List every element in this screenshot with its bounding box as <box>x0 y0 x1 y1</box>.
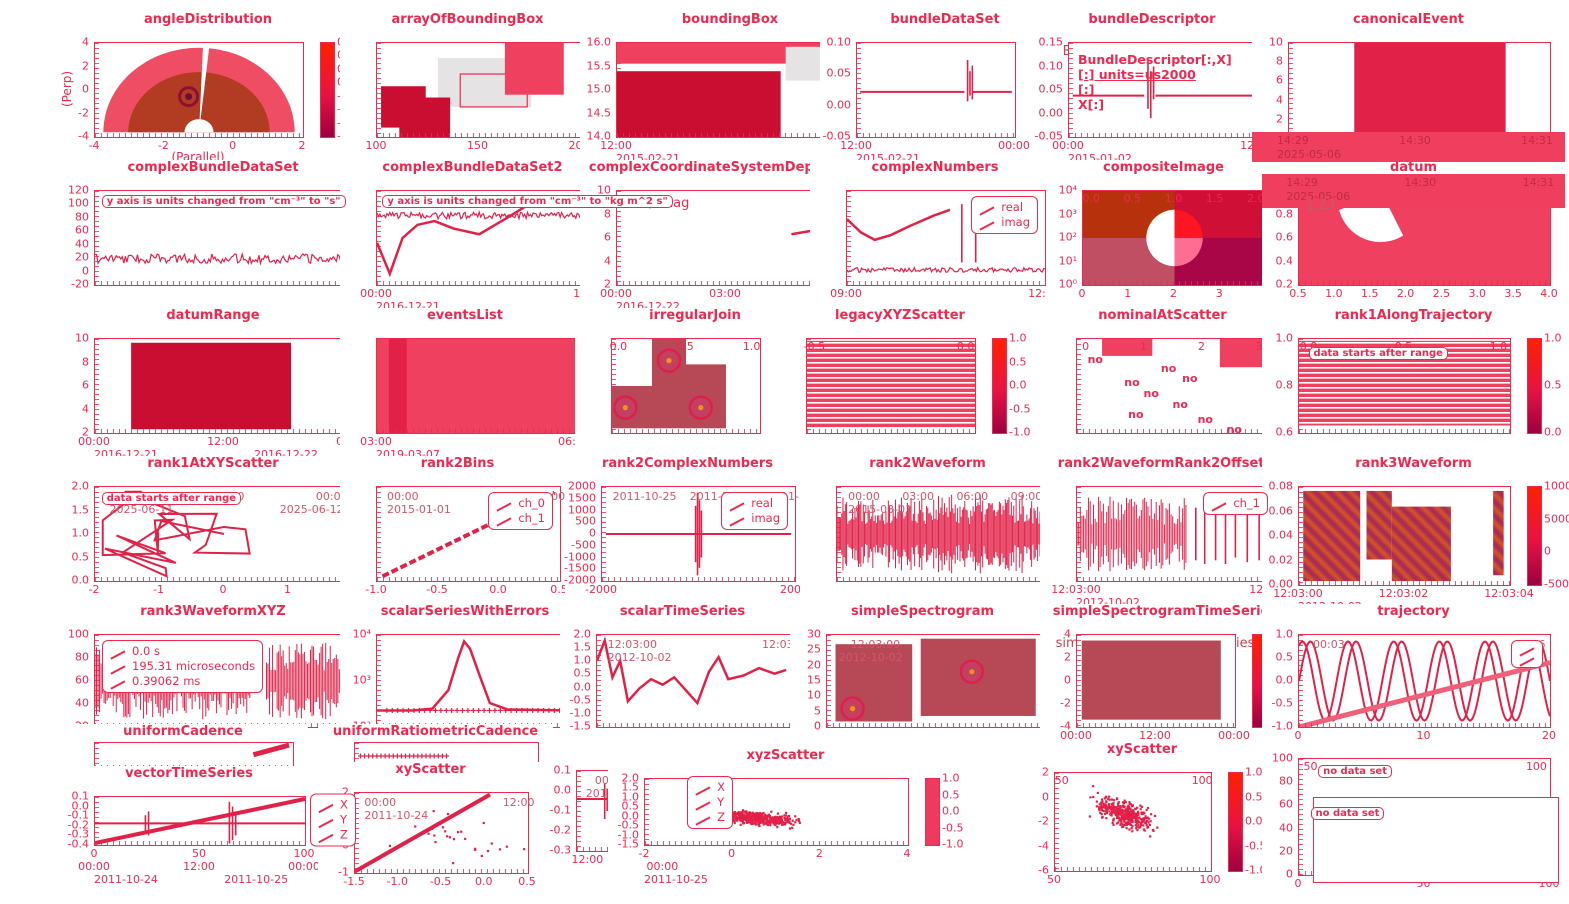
figure-datum: datumdatum0.51.01.52.02.53.03.54.01.00.8… <box>1262 160 1565 310</box>
axes <box>1298 486 1511 586</box>
figure-title: rank3WaveformXYZ <box>58 604 368 619</box>
figure-vector-time-series: vectorTimeSeriesvectorTimeSeries05010000… <box>58 766 320 900</box>
date-label: 2025-05-06 <box>1277 148 1341 161</box>
plot-content <box>1055 773 1211 871</box>
legend-label: 0.0 s <box>132 644 160 659</box>
time-label: 09:00 <box>1011 490 1043 503</box>
x-tick: 0 <box>220 583 227 596</box>
y-tick: 0.6 <box>1276 231 1294 244</box>
y-tick: -20 <box>71 278 89 291</box>
legend-item: real <box>729 496 780 511</box>
y-tick: 2 <box>1042 766 1049 779</box>
y-tick: -4 <box>1038 839 1049 852</box>
x-tick: 2 <box>299 139 306 152</box>
date-label: 2011-10-25 <box>224 873 288 886</box>
time-label: 12:03:00 <box>608 638 657 651</box>
y-tick: -0.3 <box>550 844 571 857</box>
y-tick: 30 <box>807 628 821 641</box>
legend-label: imag <box>1001 215 1030 230</box>
x-tick: -1.0 <box>387 875 408 888</box>
figure-rank2-complex-numbers: rank2ComplexNumbersrank2ComplexNumbers-2… <box>565 456 810 606</box>
y-tick: 2.0 <box>72 480 90 493</box>
y-tick: 4 <box>604 254 611 267</box>
line-swatch-icon <box>695 783 711 793</box>
x-tick: 00:00 <box>998 139 1030 152</box>
figure-title: uniformRatiometricCadence <box>318 724 553 739</box>
y-tick: 10³ <box>353 674 371 687</box>
y-tick: 100 <box>1272 752 1293 765</box>
y-tick: 0.00 <box>1039 106 1064 119</box>
figure-title: rank2Bins <box>340 456 575 471</box>
figure-title: scalarSeriesWithErrors <box>340 604 590 619</box>
figure-title: xyScatter <box>1018 742 1266 757</box>
date-label: 2015-03-01 <box>848 503 912 516</box>
line-swatch-icon <box>695 813 711 823</box>
x-tick: 1 <box>284 583 291 596</box>
plot-content <box>95 43 303 137</box>
y-tick: 40 <box>75 697 89 710</box>
y-tick: 1.0 <box>1276 332 1294 345</box>
y-tick: 0.5 <box>574 667 592 680</box>
x-tick: 2 <box>816 847 823 860</box>
y-tick: -2 <box>78 106 89 119</box>
legend-label: Y <box>717 795 724 810</box>
figure-rank3-waveform: rank3Waveformrank3Waveform12:03:0012:03:… <box>1262 456 1565 610</box>
colorbar <box>1228 772 1243 872</box>
figure-simple-spectrogram: simpleSpectrogramsimpleSpectrogram302520… <box>790 604 1055 752</box>
y-tick: -1.0 <box>570 706 591 719</box>
y-tick: 0.04 <box>1269 529 1294 542</box>
y-tick: 0.6 <box>1276 426 1294 439</box>
x-tick: -4 <box>89 139 100 152</box>
y-tick: 5 <box>814 704 821 717</box>
y-tick: 4 <box>82 402 89 415</box>
x-tick: 20 <box>1542 729 1556 742</box>
y-tick: 10 <box>75 332 89 345</box>
y-tick: 0.15 <box>1039 36 1064 49</box>
y-tick: 0 <box>1042 790 1049 803</box>
date-label: 2012-10-02 <box>839 651 903 664</box>
figure-title: legacyXYZScatter <box>770 308 1030 323</box>
colorbar <box>1527 338 1542 434</box>
nominal-label: no <box>1173 398 1188 411</box>
time-label: 14:31 <box>1523 176 1555 189</box>
colorbar-tick: 0.5 <box>1009 355 1027 368</box>
colorbar-tick: -1.0 <box>942 838 963 851</box>
y-tick: 0 <box>814 720 821 733</box>
date-label: 2015-01-01 <box>387 503 451 516</box>
x-tick: 1.5 <box>1361 287 1379 300</box>
plot-content <box>645 779 908 845</box>
y-tick: 0.05 <box>827 67 852 80</box>
colorbar-tick: -0.5 <box>1009 402 1030 415</box>
figure-simple-spectrogram-time-series: simpleSpectrogramTimeSeriessimpleSpectro… <box>1040 604 1290 752</box>
figure-title: nominalAtScatter <box>1040 308 1285 323</box>
value-label: 1.23 <box>1306 198 1335 213</box>
legend-label: imag <box>751 511 780 526</box>
x-tick: -2 <box>89 583 100 596</box>
x-tick-top: 1.5 <box>1206 192 1224 205</box>
figure-title: arrayOfBoundingBox <box>340 12 595 27</box>
y-tick: -1 <box>338 866 349 879</box>
figure-title: trajectory <box>1262 604 1565 619</box>
time-label: 14:30 <box>1404 176 1436 189</box>
y-tick: -6 <box>1038 864 1049 877</box>
plot-content <box>1077 635 1235 727</box>
time-label: 14:30 <box>1399 134 1431 147</box>
y-tick: 10² <box>1059 231 1077 244</box>
figure-title: simpleSpectrogram <box>790 604 1055 619</box>
figure-title: rank1AlongTrajectory <box>1262 308 1565 323</box>
x-tick: 0 <box>1079 287 1086 300</box>
y-tick: -0.4 <box>68 838 89 851</box>
y-tick: -4 <box>1060 720 1071 733</box>
y-tick: 16.0 <box>587 36 612 49</box>
legend-label: 0.39062 ms <box>132 674 200 689</box>
x-tick: 12:03:00 <box>1051 583 1100 596</box>
y-tick: 0.4 <box>1276 254 1294 267</box>
figure-rank2-waveform-rank2-offsets: rank2WaveformRank2Offsetsrank2WaveformRa… <box>1040 456 1290 606</box>
y-tick: 60 <box>75 674 89 687</box>
axes <box>94 338 354 434</box>
figure-complex-bundle-data-set: complexBundleDataSetcomplexBundleDataSet… <box>58 160 368 310</box>
y-tick: 100 <box>68 628 89 641</box>
y-tick: 10¹ <box>1059 254 1077 267</box>
x-tick: 2 <box>1170 287 1177 300</box>
figure-title: vectorTimeSeries <box>58 766 320 781</box>
colorbar-tick: 5000 <box>1544 512 1569 525</box>
colorbar <box>1527 486 1542 586</box>
x-tick: 12:00 <box>572 853 604 866</box>
legend-item: ch_1 <box>496 511 545 526</box>
figure-title: scalarTimeSeries <box>560 604 805 619</box>
legend: XYZ <box>310 794 356 847</box>
nominal-label: no <box>1198 413 1213 426</box>
y-tick: -1.5 <box>570 720 591 733</box>
y-tick: 0.10 <box>827 36 852 49</box>
line-swatch-icon <box>496 499 512 509</box>
y-tick: -0.1 <box>550 804 571 817</box>
nominal-label: no <box>1227 423 1242 436</box>
y-tick: 10⁴ <box>353 628 371 641</box>
y-tick: -1.0 <box>1272 720 1293 733</box>
x-tick-top: 1.0 <box>1490 340 1508 353</box>
legend-item: Z <box>318 828 348 843</box>
x-tick: 12:03:02 <box>1379 587 1428 600</box>
y-tick: 2 <box>1064 651 1071 664</box>
x-tick-top: 1.0 <box>743 340 761 353</box>
colorbar-tick: 0.0 <box>1544 426 1562 439</box>
y-tick: 0.0 <box>1276 674 1294 687</box>
x-tick: 00:00 <box>1218 729 1250 742</box>
x-tick: 0 <box>728 847 735 860</box>
legend-label: 195.31 microseconds <box>132 659 255 674</box>
figure-rank1-at-xy-scatter: rank1AtXYScatterrank1AtXYScatter-2-10122… <box>58 456 368 606</box>
descriptor-line: BundleDescriptor[:,X] <box>1078 52 1232 67</box>
colorbar <box>925 778 940 846</box>
figure-title: uniformCadence <box>58 724 308 739</box>
annotation-badge: data starts after range <box>1309 347 1448 360</box>
y-tick: 0.0 <box>574 680 592 693</box>
line-swatch-icon <box>496 514 512 524</box>
y-tick: 120 <box>68 184 89 197</box>
plot-content <box>95 797 305 845</box>
figure-no-data-panels: 05010050100100806040200no data setno dat… <box>1262 742 1565 900</box>
figure-title: complexNumbers <box>810 160 1060 175</box>
time-band: 14:2914:3014:312025-05-06 <box>1252 132 1565 162</box>
x-tick-top: 50 <box>1304 760 1318 773</box>
colorbar-tick: -5000 <box>1544 578 1569 591</box>
legend-label: X <box>717 780 725 795</box>
legend-item: Y <box>318 813 348 828</box>
colorbar-tick: 0.0 <box>1009 379 1027 392</box>
y-tick: 10 <box>1269 36 1283 49</box>
figure-title: canonicalEvent <box>1252 12 1565 27</box>
plot-content <box>857 43 1015 137</box>
y-tick: 2 <box>82 59 89 72</box>
figure-canonical-event: canonicalEventcanonicalEvent0.82.0108642… <box>1252 12 1565 164</box>
x-tick: 100 <box>294 847 315 860</box>
legend: XYZ <box>687 776 733 829</box>
x-tick: 4.0 <box>1540 287 1558 300</box>
time-label: 14:29 <box>1286 176 1318 189</box>
y-tick: 0.5 <box>1276 651 1294 664</box>
x-tick-time: 12:00 <box>183 860 215 873</box>
nominal-label: no <box>1124 376 1139 389</box>
y-tick: 1.0 <box>72 527 90 540</box>
figure-trajectory: trajectorytrajectory010201.00.50.0-0.5-1… <box>1262 604 1565 752</box>
y-tick: 2 <box>82 426 89 439</box>
axes <box>856 42 1016 138</box>
plot-content <box>95 339 353 433</box>
legend-label: real <box>751 496 773 511</box>
time-label: 00:00 <box>387 490 419 503</box>
date-label: 2011-10-24 <box>94 873 158 886</box>
x-tick: 100 <box>366 139 387 152</box>
x-tick: 0 <box>229 139 236 152</box>
nominal-label: no <box>1128 408 1143 421</box>
y-tick: -4 <box>78 130 89 143</box>
colorbar-tick: 0.5 <box>942 788 960 801</box>
figure-title: eventsList <box>340 308 590 323</box>
axes <box>1288 42 1551 140</box>
figure-title: rank3Waveform <box>1262 456 1565 471</box>
colorbar-tick: 10000 <box>1544 480 1569 493</box>
y-tick: 0.0 <box>72 574 90 587</box>
x-tick: -2 <box>158 139 169 152</box>
legend-label: ch_1 <box>1233 496 1260 511</box>
line-swatch-icon <box>729 499 745 509</box>
y-tick: 2 <box>1276 112 1283 125</box>
x-tick: 3.0 <box>1469 287 1487 300</box>
y-tick: 10 <box>807 689 821 702</box>
y-tick: 8 <box>1276 55 1283 68</box>
y-tick: 0 <box>1286 868 1293 881</box>
colorbar <box>992 338 1007 434</box>
x-tick: 09:00 <box>830 287 862 300</box>
plot-content <box>1299 487 1510 585</box>
legend: realimag <box>721 492 788 530</box>
figure-array-of-bounding-box: arrayOfBoundingBoxarrayOfBoundingBox1001… <box>340 12 595 162</box>
nominal-label: no <box>1144 387 1159 400</box>
x-tick: 12:00 <box>1139 729 1171 742</box>
y-tick: 2.0 <box>574 628 592 641</box>
colorbar-tick: 0.0 <box>1245 815 1263 828</box>
y-tick: -0.05 <box>1035 130 1063 143</box>
y-tick: 0.05 <box>1039 83 1064 96</box>
y-tick: 80 <box>75 210 89 223</box>
time-label: 00:00 <box>364 796 396 809</box>
y-tick: 20 <box>807 658 821 671</box>
x-tick: -0.5 <box>430 875 451 888</box>
nominal-label: no <box>1161 362 1176 375</box>
time-label: 00:03 <box>1313 638 1345 651</box>
legend-item: ch_0 <box>496 496 545 511</box>
x-tick: 100 <box>1200 873 1221 886</box>
line-swatch-icon <box>318 830 334 840</box>
x-tick-top: 100 <box>1526 760 1547 773</box>
legend-label: ch_1 <box>518 511 545 526</box>
y-tick: -0.2 <box>550 824 571 837</box>
y-tick: 1.5 <box>574 641 592 654</box>
y-tick: 80 <box>75 651 89 664</box>
x-tick-top: 0.5 <box>676 340 694 353</box>
figure-rank1-along-trajectory: rank1AlongTrajectoryrank1AlongTrajectory… <box>1262 308 1565 458</box>
x-tick: 00:00 <box>360 287 392 300</box>
figure-datum-range: datumRangedatumRange00:0012:0000:0010864… <box>58 308 368 458</box>
plot-content <box>612 339 760 433</box>
legend-item <box>1519 644 1535 654</box>
x-tick: 50 <box>192 847 206 860</box>
legend-item: real <box>979 200 1030 215</box>
plot-content <box>377 339 575 433</box>
figure-complex-numbers: complexNumberscomplexNumbers09:0012:00re… <box>810 160 1060 310</box>
legend-item: X <box>318 798 348 813</box>
y-tick: 60 <box>75 224 89 237</box>
legend-item: ch_1 <box>1211 496 1260 511</box>
figure-title: rank1AtXYScatter <box>58 456 368 471</box>
x-tick-time: 00:00 <box>647 860 679 873</box>
colorbar <box>320 42 335 138</box>
figure-nominal-at-scatter: nominalAtScatternominalAtScatter01233530… <box>1040 308 1285 458</box>
time-label: 14:29 <box>1277 134 1309 147</box>
y-tick: 0.2 <box>1276 278 1294 291</box>
y-tick: 14.0 <box>587 130 612 143</box>
colorbar-tick: 1.0 <box>942 772 960 785</box>
legend-label: ch_0 <box>518 496 545 511</box>
y-tick: 6 <box>82 379 89 392</box>
y-tick: 0.1 <box>554 764 572 777</box>
y-tick: 8 <box>82 355 89 368</box>
x-tick: -1 <box>153 583 164 596</box>
figure-title: xyScatter <box>318 762 543 777</box>
legend: ch_0ch_1 <box>488 492 553 530</box>
legend: realimag <box>971 196 1038 234</box>
x-tick: 0.0 <box>475 875 493 888</box>
y-axis-label: (Perp) <box>60 71 74 107</box>
y-tick: -2 <box>1038 815 1049 828</box>
colorbar-tick: 0.5 <box>1245 790 1263 803</box>
line-swatch-icon <box>695 798 711 808</box>
annotation-badge: y axis is units changed from "cm⁻³" to "… <box>102 195 346 208</box>
x-tick: 0.0 <box>489 583 507 596</box>
colorbar-tick: 0.5 <box>1544 379 1562 392</box>
date-label: 2012-10-02 <box>608 651 672 664</box>
x-tick-top: 1.0 <box>1165 192 1183 205</box>
figure-rank2-bins: rank2Binsrank2Bins-1.0-0.50.00.500:0012:… <box>340 456 575 606</box>
line-swatch-icon <box>1519 644 1535 654</box>
legend: 0.0 s195.31 microseconds0.39062 ms <box>102 640 263 693</box>
annotation-badge: y axis is units changed from "cm⁻³" to "… <box>382 195 672 208</box>
figure-scalar-time-series: scalarTimeSeriesscalarTimeSeries2.01.51.… <box>560 604 805 752</box>
y-tick: 0 <box>82 264 89 277</box>
x-tick-top: 0.5 <box>1124 192 1142 205</box>
y-tick: -0.5 <box>1272 697 1293 710</box>
figure-title: simpleSpectrogramTimeSeries <box>1040 604 1290 619</box>
y-tick: 15.5 <box>587 59 612 72</box>
x-tick: 4 <box>904 847 911 860</box>
y-tick: -0.05 <box>823 130 851 143</box>
figure-title: complexBundleDataSet2 <box>340 160 605 175</box>
figure-rank2-waveform: rank2Waveformrank2Waveform00:0003:0006:0… <box>800 456 1055 606</box>
x-tick-top: 0 <box>1082 340 1089 353</box>
figure-title: rank2WaveformRank2Offsets <box>1040 456 1290 471</box>
line-swatch-icon <box>318 815 334 825</box>
x-tick: 1.0 <box>1325 287 1343 300</box>
line-swatch-icon <box>729 514 745 524</box>
figure-complex-bundle-data-set2: complexBundleDataSet2complexBundleDataSe… <box>340 160 605 310</box>
axes <box>1076 634 1236 728</box>
descriptor-line: [:] units=us2000 <box>1078 67 1232 82</box>
y-tick: 0.00 <box>1269 578 1294 591</box>
y-tick: 0.06 <box>1269 504 1294 517</box>
line-swatch-icon <box>1211 499 1227 509</box>
y-tick: 40 <box>1279 821 1293 834</box>
plot-content <box>377 635 575 727</box>
figure-title: angleDistribution <box>58 12 358 27</box>
y-tick: -2000 <box>564 574 596 587</box>
axes <box>376 338 576 434</box>
y-tick: 4 <box>82 36 89 49</box>
axes <box>94 796 306 846</box>
x-tick-top: 100 <box>1192 774 1213 787</box>
x-tick: -2 <box>639 847 650 860</box>
figure-events-list: eventsListeventsList03:0006:002019-03-07 <box>340 308 590 458</box>
y-tick: 10⁰ <box>1059 278 1077 291</box>
annotation-badge: data starts after range <box>102 492 241 505</box>
descriptor-text: BundleDescriptor[:,X][:] units=us2000[:]… <box>1078 52 1232 112</box>
y-tick: -1.5 <box>618 838 639 851</box>
x-tick: 50 <box>1047 873 1061 886</box>
y-tick: 6 <box>604 231 611 244</box>
y-tick: 20 <box>75 251 89 264</box>
colorbar-tick: -1.0 <box>1009 426 1030 439</box>
nominal-label: no <box>1182 372 1197 385</box>
colorbar-tick: 0.0 <box>942 805 960 818</box>
x-tick: 0 <box>1295 729 1302 742</box>
legend <box>1511 640 1543 668</box>
colorbar-tick: 1.0 <box>1009 332 1027 345</box>
legend-item: X <box>695 780 725 795</box>
colorbar-tick: 0 <box>1544 545 1551 558</box>
figure-title: datumRange <box>58 308 368 323</box>
x-tick: 150 <box>467 139 488 152</box>
x-tick-top: 0.0 <box>957 340 975 353</box>
x-tick: -0.5 <box>426 583 447 596</box>
y-tick: -2 <box>1060 697 1071 710</box>
y-tick: 1.5 <box>72 503 90 516</box>
plot-content <box>1083 191 1266 285</box>
